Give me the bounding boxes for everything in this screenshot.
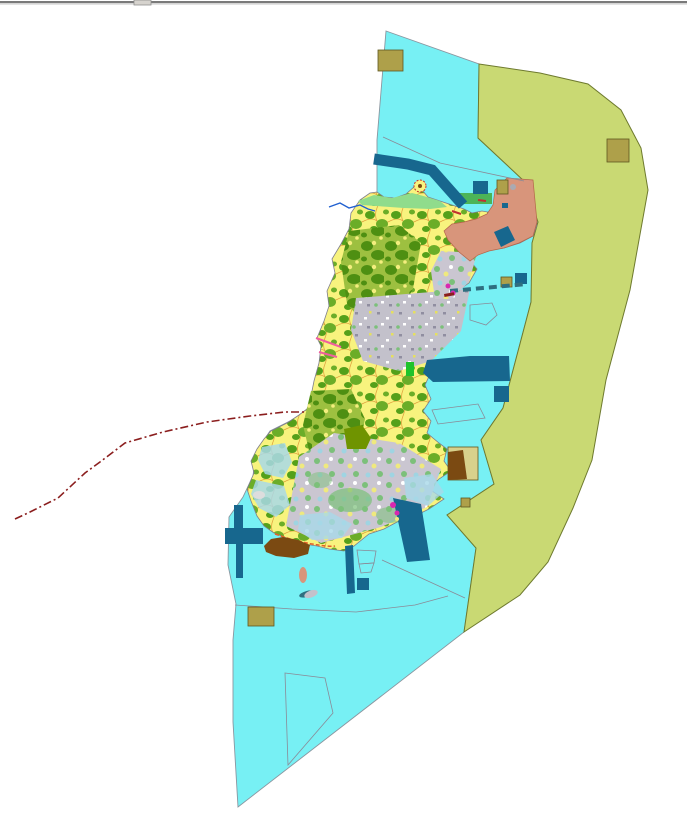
brown-parcel-part — [448, 450, 467, 480]
tidal-pale-blue-patch — [298, 512, 352, 540]
cadastral-outlines — [235, 137, 524, 765]
outlined-parcel — [432, 404, 485, 424]
sea-boundary-line — [383, 137, 524, 181]
south-coast-orange-line — [275, 534, 335, 546]
south-vertical-strip — [345, 545, 355, 594]
tidal-pale-blue-patch — [251, 480, 290, 517]
boat-shape — [298, 589, 315, 599]
forest-cluster-center — [303, 389, 365, 471]
south-green-patch — [308, 472, 332, 488]
magenta-survey-mark — [451, 291, 456, 296]
water-features-group — [225, 159, 527, 599]
map-canvas[interactable] — [0, 0, 687, 821]
yellow-survey-mark — [395, 517, 399, 521]
khaki-square — [607, 139, 629, 162]
administrative-boundary-line — [15, 412, 307, 519]
salmon-gray-dot — [510, 184, 516, 190]
khaki-square-pale — [448, 447, 478, 480]
northeast-salmon-district — [444, 178, 537, 261]
water-square-below-reservoir — [494, 386, 509, 402]
sea-boundary-line — [235, 596, 448, 612]
south-channel-band — [393, 498, 430, 562]
map-image — [0, 0, 687, 821]
outlined-parcel — [359, 563, 374, 573]
khaki-square — [378, 50, 403, 71]
south-water-square — [357, 578, 369, 590]
south-green-patch — [376, 507, 404, 523]
tidal-pale-blue-patch — [404, 474, 444, 506]
magenta-survey-mark — [446, 284, 451, 289]
bright-green-parcel — [406, 362, 414, 376]
island-landmass — [247, 187, 537, 551]
outlined-parcel — [357, 550, 376, 564]
coast-stream-line — [329, 203, 375, 211]
dark-olive-parcel — [344, 425, 371, 449]
pink-line-mark — [319, 352, 337, 357]
west-breakwater — [234, 505, 243, 533]
sea-group — [228, 31, 538, 807]
salmon-islet — [299, 567, 307, 583]
eastern-coastal-zone — [447, 64, 648, 632]
reservoir — [423, 356, 510, 382]
khaki-square — [461, 498, 470, 507]
bridge-route — [450, 284, 527, 291]
salmon-red-dash — [478, 200, 486, 201]
outlined-parcel — [470, 303, 497, 325]
west-breakwater — [236, 544, 243, 578]
window-border-dark-line — [0, 1, 687, 3]
khaki-square — [497, 180, 508, 194]
grey-coast-patch — [253, 491, 265, 499]
west-breakwater — [225, 528, 263, 544]
south-green-patch — [328, 488, 372, 512]
pink-line-mark — [316, 338, 341, 347]
north-shore-greenbelt — [358, 193, 447, 209]
east-mixed-area — [431, 251, 477, 299]
routes-group — [15, 284, 527, 522]
monument-islet — [414, 180, 426, 192]
khaki-parcels — [248, 50, 629, 626]
window-border-light-line — [0, 3, 687, 4]
forest-cluster-north — [341, 225, 421, 329]
central-urban-area — [351, 289, 470, 371]
sea-boundary-line — [382, 560, 465, 598]
southeast-pier — [494, 226, 515, 247]
monument-islet-dot — [418, 184, 422, 188]
magenta-survey-mark — [395, 511, 400, 516]
gray-islet — [303, 588, 319, 599]
north-canal — [374, 159, 463, 205]
southern-mixed-area — [286, 433, 441, 543]
green-parcel-rect — [458, 193, 492, 204]
tidal-pale-blue-patch — [258, 443, 292, 478]
brown-tidal-flat — [264, 537, 310, 558]
window-border — [0, 0, 687, 5]
outlined-parcel — [285, 673, 333, 765]
dark-red-mark — [444, 292, 454, 297]
sea-area — [228, 31, 538, 807]
northeast-red-mark — [452, 211, 461, 214]
water-square-east — [515, 273, 527, 284]
magenta-survey-mark — [390, 502, 396, 508]
water-rect-northeast — [473, 181, 488, 194]
window-border-tab — [134, 0, 151, 5]
khaki-square — [501, 277, 512, 287]
khaki-square — [248, 607, 274, 626]
salmon-blue-bit — [502, 203, 508, 208]
island-group — [247, 178, 537, 551]
